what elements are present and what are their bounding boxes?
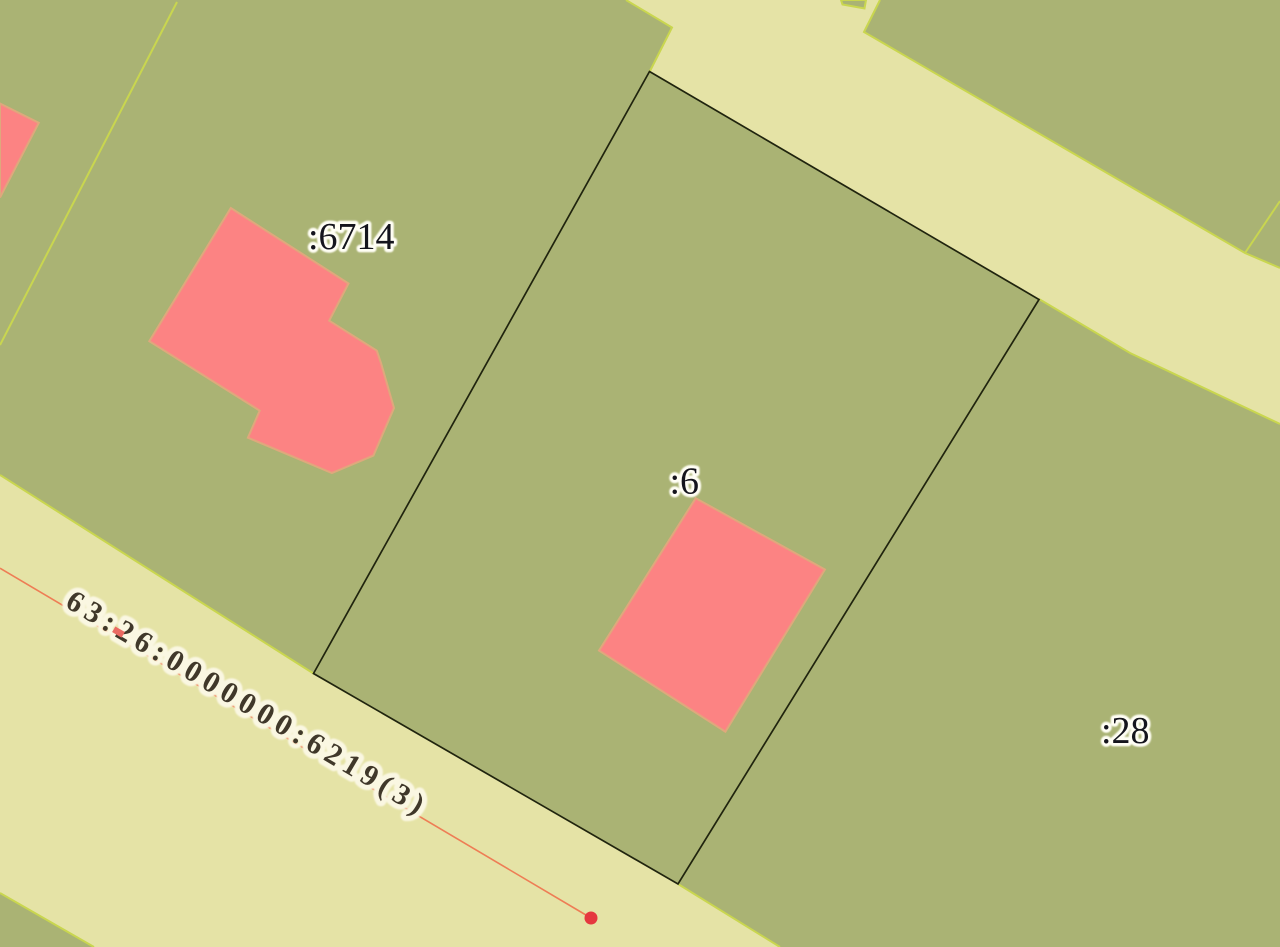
- svg-text::28: :28: [1101, 710, 1150, 752]
- svg-text::6: :6: [670, 461, 700, 503]
- svg-text::6714: :6714: [308, 216, 395, 258]
